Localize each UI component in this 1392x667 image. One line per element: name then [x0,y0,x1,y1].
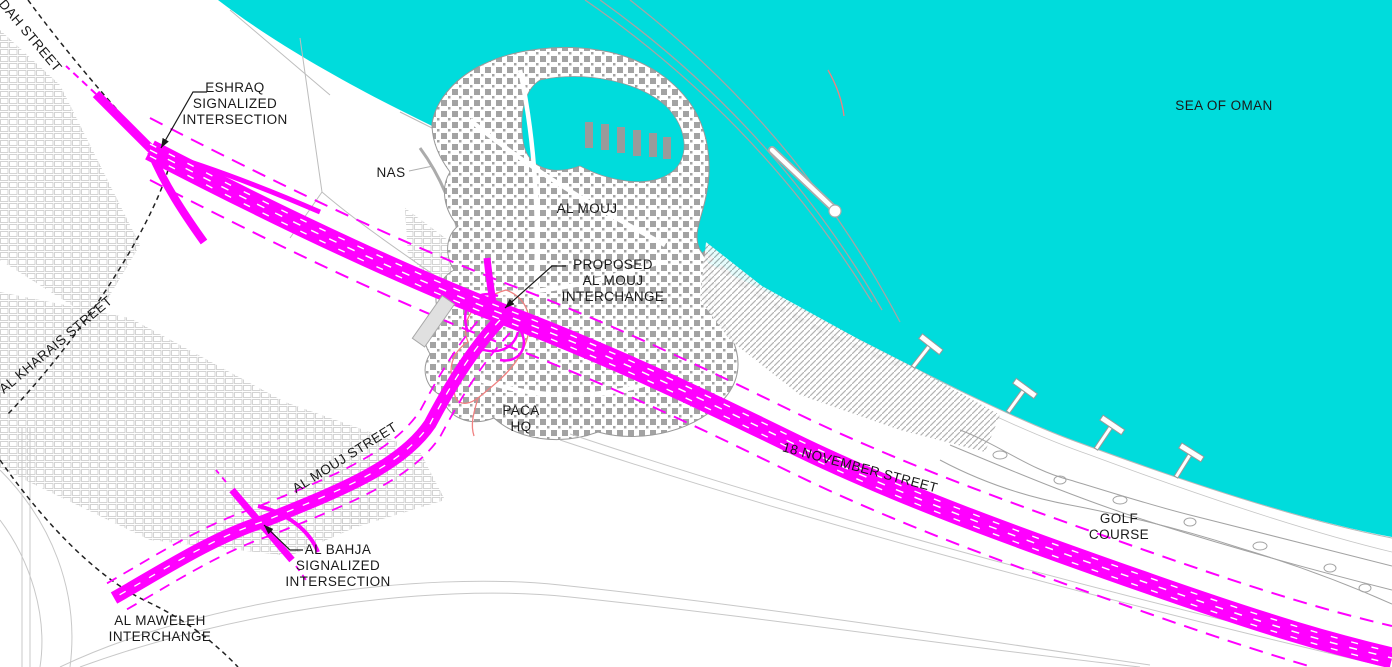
nas-leader [409,166,433,171]
sea-of-oman-label: SEA OF OMAN [1175,98,1272,114]
al-mouj-development [424,48,738,440]
al-maweleh-interchange-callout: AL MAWELEH INTERCHANGE [109,613,212,645]
nas-area-label: NAS [377,165,406,181]
eshraq-intersection-callout: ESHRAQ SIGNALIZED INTERSECTION [182,80,287,128]
al-mouj-area-label: AL MOUJ [557,201,618,217]
proposed-interchange-callout: PROPOSED AL MOUJ INTERCHANGE [562,257,665,305]
golf-course-label: GOLF COURSE [1089,511,1149,543]
al-bahja-intersection-callout: AL BAHJA SIGNALIZED INTERSECTION [285,542,390,590]
site-plan-map: DAH STREET ESHRAQ SIGNALIZED INTERSECTIO… [0,0,1392,667]
paca-hq-label: PACA HQ [502,403,539,435]
